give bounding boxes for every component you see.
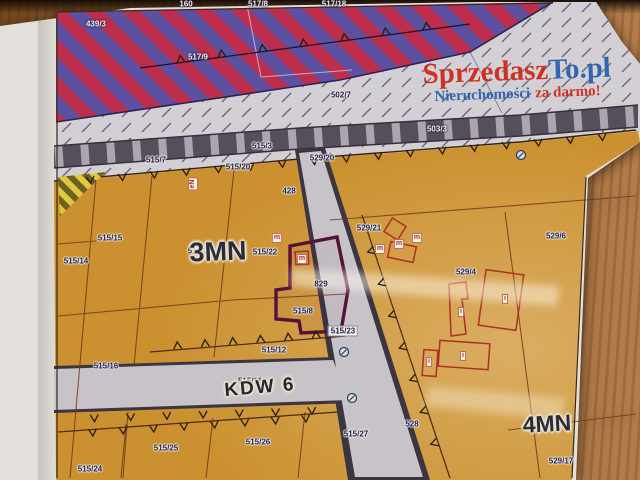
zone-label-4mn: 4MN (522, 409, 572, 439)
photo-stage: 160517/8517/18439/3517/9502/7503/3515/75… (0, 0, 640, 480)
zoning-map (0, 0, 640, 480)
zone-label-3mn: 3MN (189, 236, 247, 269)
